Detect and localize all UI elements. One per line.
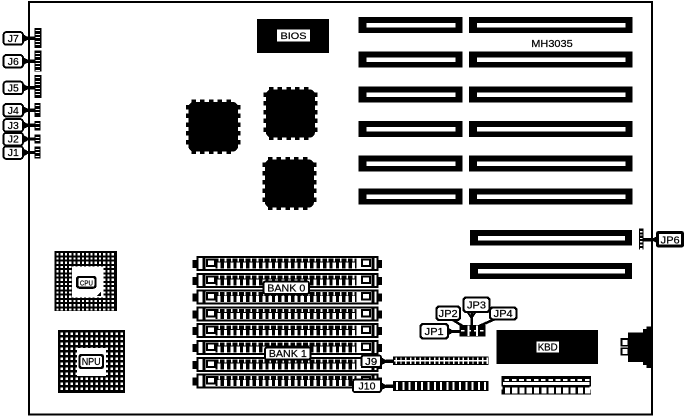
svg-text:BANK 1: BANK 1	[269, 348, 307, 360]
svg-text:JP4: JP4	[494, 309, 513, 320]
svg-text:J2: J2	[8, 135, 19, 146]
svg-text:J7: J7	[8, 34, 19, 45]
svg-text:J6: J6	[8, 57, 19, 68]
svg-text:JP6: JP6	[661, 235, 680, 246]
svg-text:J10: J10	[359, 382, 376, 393]
svg-text:J9: J9	[365, 357, 377, 368]
svg-text:NPU: NPU	[82, 357, 101, 368]
svg-text:J5: J5	[8, 83, 19, 94]
svg-text:JP3: JP3	[467, 301, 486, 312]
svg-text:JP1: JP1	[425, 327, 444, 338]
svg-text:BIOS: BIOS	[281, 31, 307, 42]
svg-text:J4: J4	[8, 106, 19, 117]
svg-text:J3: J3	[8, 121, 19, 132]
svg-text:KBD: KBD	[538, 343, 558, 354]
svg-text:MH3035: MH3035	[531, 38, 573, 50]
svg-text:JP2: JP2	[439, 309, 458, 320]
svg-text:CPU: CPU	[80, 278, 93, 287]
svg-text:J1: J1	[8, 148, 19, 159]
svg-text:BANK 0: BANK 0	[267, 282, 305, 294]
